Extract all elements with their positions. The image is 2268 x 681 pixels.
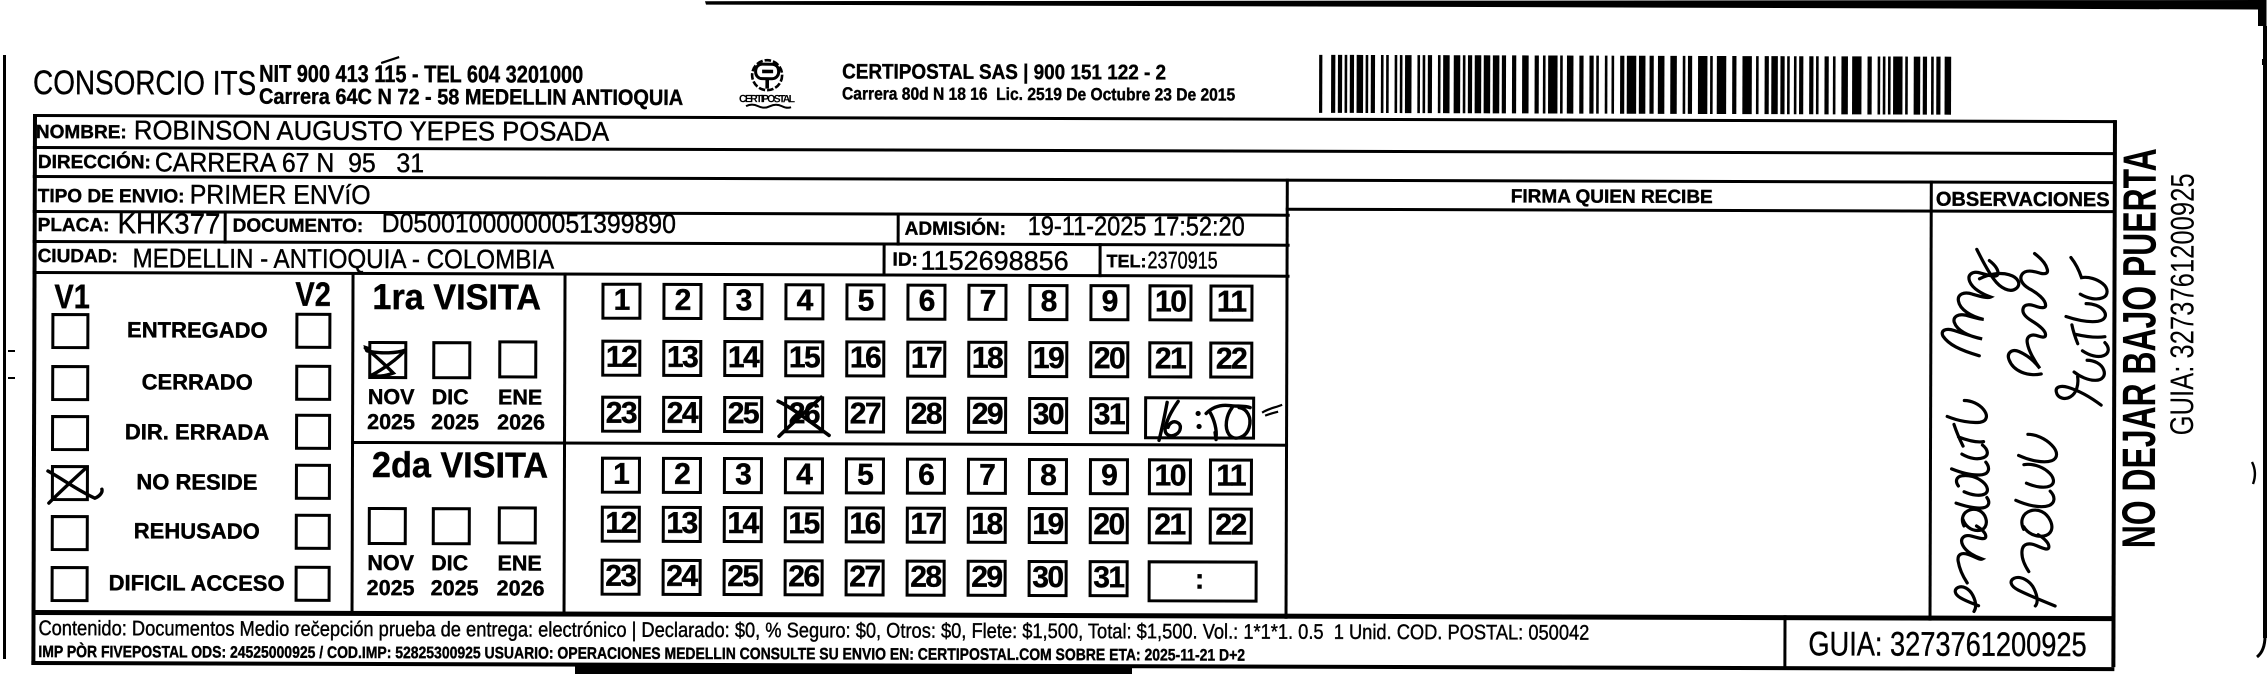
svg-text:GUIA: 3273761200925: GUIA: 3273761200925 [2163,173,2201,435]
